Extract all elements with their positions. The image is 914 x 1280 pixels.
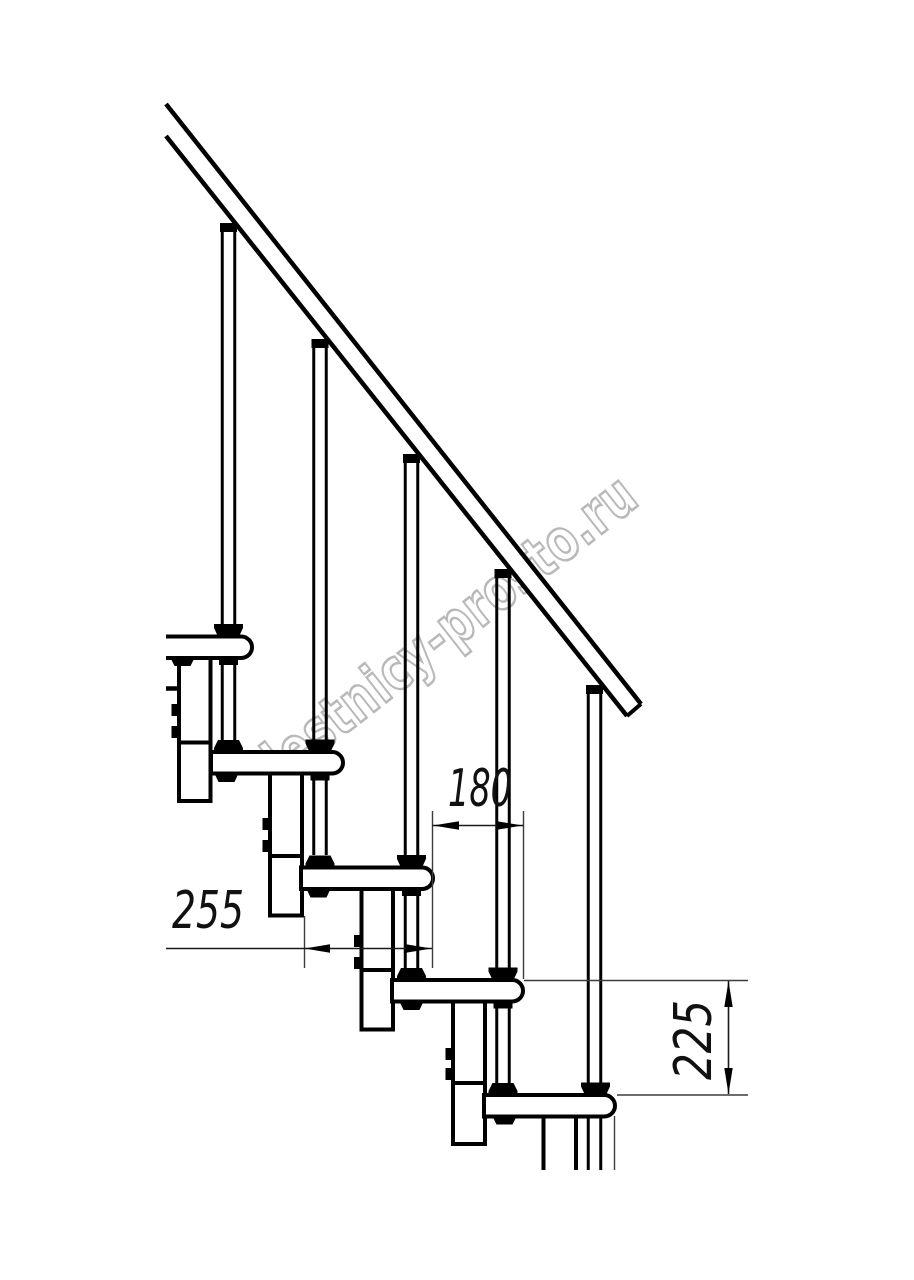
dimension-label-180: 180 xyxy=(448,759,512,819)
dimension-label-255: 255 xyxy=(172,881,244,941)
mount-lug xyxy=(171,659,194,666)
baluster-rail-cap xyxy=(312,339,329,348)
bolt-tab xyxy=(172,726,180,738)
support-post-5 xyxy=(588,1117,601,1171)
post-top-flange xyxy=(311,774,330,781)
baluster-base-mount xyxy=(397,855,426,868)
post-top-flange xyxy=(494,1002,513,1009)
post-top-flange xyxy=(219,658,238,665)
arrowhead-left xyxy=(305,944,331,952)
baluster-1 xyxy=(214,223,243,637)
post-foot-collar xyxy=(214,740,243,752)
arrowhead-left xyxy=(433,821,459,829)
dimension-225: 225 xyxy=(524,981,748,1171)
baluster-rail-cap xyxy=(586,685,603,694)
post-top-flange xyxy=(402,889,421,896)
staircase-drawing-page: lestnicy-prosto.ru xyxy=(0,0,914,1280)
staircase-technical-drawing: lestnicy-prosto.ru xyxy=(0,0,914,1280)
arrowhead-up xyxy=(724,981,732,1007)
support-post-4 xyxy=(489,1002,518,1096)
support-post-1 xyxy=(214,658,243,752)
post-foot-collar xyxy=(306,856,335,868)
spine-module-4 xyxy=(446,1002,486,1145)
tread-4 xyxy=(392,980,523,1002)
mount-lug xyxy=(215,775,238,783)
spine-module-3 xyxy=(354,889,393,1030)
baluster-base-mount xyxy=(581,1083,610,1096)
baluster-base-mount xyxy=(489,968,518,981)
dimension-label-225: 225 xyxy=(664,1000,724,1080)
bolt-tab xyxy=(446,1048,454,1060)
baluster-rail-cap xyxy=(495,569,512,578)
mount-lug xyxy=(400,1003,423,1011)
mount-lug xyxy=(493,1118,516,1125)
spine-module-2 xyxy=(263,774,303,916)
baluster-rail-cap xyxy=(403,454,420,463)
bolt-tab xyxy=(263,840,271,852)
tread-3 xyxy=(301,868,433,890)
bolt-tab xyxy=(172,704,180,716)
handrail-top-edge xyxy=(166,104,641,704)
baluster-rail-cap xyxy=(220,223,237,232)
bolt-tab xyxy=(446,1068,454,1080)
baluster-5 xyxy=(581,685,610,1095)
spine-module-5 xyxy=(544,1117,577,1171)
baluster-base-mount xyxy=(214,624,243,637)
bolt-tab xyxy=(263,818,271,830)
arrowhead-down xyxy=(724,1068,732,1094)
support-post-2 xyxy=(306,774,335,868)
tread-2 xyxy=(211,752,343,774)
bolt-tab xyxy=(354,957,362,969)
tread-1 xyxy=(166,637,252,659)
post-foot-collar xyxy=(397,968,426,980)
mount-lug xyxy=(307,890,330,898)
tread-5 xyxy=(484,1095,615,1117)
spine-module-1 xyxy=(172,658,211,801)
post-foot-collar xyxy=(489,1083,518,1095)
baluster-base-mount xyxy=(306,740,335,753)
support-post-3 xyxy=(397,889,426,980)
bolt-tab xyxy=(354,935,362,947)
